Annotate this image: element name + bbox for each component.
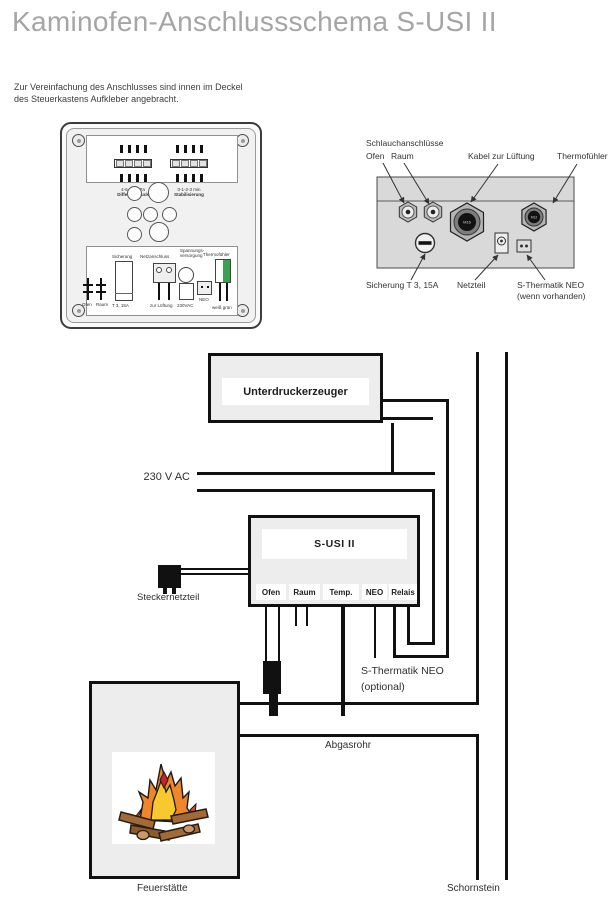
panel-schlauchanschluesse-label: Schlauchanschlüsse [366, 138, 444, 148]
schornstein-wall-left-upper [476, 352, 479, 705]
sticker-neo-label: NEO [199, 297, 209, 302]
wire-mains-top [197, 472, 435, 475]
hose-connector-raum-icon [424, 202, 441, 222]
panel-netzteil-label: Netzteil [457, 280, 485, 290]
intro-text: Zur Vereinfachung des Anschlusses sind i… [14, 82, 256, 105]
wire-raum-hose [295, 607, 297, 626]
schornstein-wall-left-lower [476, 734, 479, 880]
abgasrohr-wall-top [240, 702, 478, 705]
campfire-image [112, 752, 215, 844]
hose-port-hole [127, 227, 142, 242]
hose-symbol [100, 278, 102, 300]
unterdruckerzeuger-label: Unterdruckerzeuger [222, 378, 369, 405]
dip-pins-top [163, 140, 215, 158]
wire-unterdruck-stub [383, 417, 433, 420]
hose-symbol [96, 291, 106, 293]
thermo-terminal-green [223, 260, 230, 282]
sticker-netzanschluss-label: Netzanschluss [140, 254, 169, 259]
neo-optional-label-1: S-Thermatik NEO [361, 665, 444, 677]
panel-sicherung-label: Sicherung T 3, 15A [366, 280, 438, 290]
neo-block-dot [201, 286, 203, 288]
fuse-cylinder-cap [115, 293, 133, 294]
panel-neo-label-2: (wenn vorhanden) [517, 291, 586, 301]
terminal-wire [158, 283, 160, 300]
wire-mains-down [432, 489, 435, 645]
terminal-screw [156, 267, 162, 273]
sticker-sicherung-label: Sicherung [112, 254, 132, 259]
abgasrohr-label: Abgasrohr [325, 740, 371, 751]
neo-block-symbol [197, 281, 212, 295]
dip-switch-group-right: 0-1-2-3 min Stabilisierung [163, 140, 215, 197]
thermo-wire [226, 283, 228, 301]
dip-pins-top [107, 140, 159, 158]
power-plug [158, 565, 181, 588]
panel-kabel-label: Kabel zur Lüftung [468, 151, 535, 161]
terminal-wire [168, 283, 170, 300]
plug-cable [180, 573, 248, 575]
hose-symbol [96, 284, 106, 286]
power-plug-symbol [178, 267, 194, 283]
hose-port-hole [127, 207, 142, 222]
dip-switch-body [114, 159, 152, 168]
wire-raum-hose [306, 607, 308, 626]
power-body-symbol [179, 283, 194, 300]
cable-gland-hole [148, 182, 169, 203]
neo-block-dot [207, 286, 209, 288]
ofen-hose-probe [269, 694, 278, 716]
sticker-volt-label: 230VAC [177, 303, 193, 308]
port-temp: Temp. [323, 584, 359, 600]
neo-connector-icon [517, 240, 531, 252]
wire-neo [374, 607, 376, 658]
sticker-thermo-label: Thermofühler [203, 252, 230, 257]
wire-unterdruck-to-mains [391, 423, 394, 475]
fuse-holder-icon [416, 234, 435, 253]
sticker-wire-colors: weiß grün [212, 305, 232, 310]
wire-relais-outer-h [393, 655, 449, 658]
schornstein-label: Schornstein [447, 883, 500, 894]
port-ofen: Ofen [256, 584, 286, 600]
sticker-ofen-label: Ofen [82, 302, 92, 307]
gland-size-label: M16 [463, 220, 472, 225]
plug-cable [180, 568, 248, 570]
fuse-cylinder-symbol [115, 261, 133, 301]
wire-relais-inner-v [407, 607, 410, 645]
wire-unterdruck-down [446, 399, 449, 658]
dip-pins-bottom [163, 169, 215, 187]
panel-thermofuehler-label: Thermofühler [557, 151, 608, 161]
schornstein-wall-right [505, 352, 508, 880]
dip-name-label: Stabilisierung [163, 192, 215, 197]
ofen-hose-connector [263, 661, 281, 694]
sticker-raum-label: Raum [96, 302, 108, 307]
feuerstaette-label: Feuerstätte [137, 883, 188, 894]
sticker-lueftung-label: zur Lüftung [150, 303, 173, 308]
wire-ofen-hose [278, 607, 280, 662]
hose-port-hole [143, 207, 158, 222]
wire-unterdruck-out [383, 399, 448, 402]
wire-relais-outer-v [393, 607, 396, 658]
wire-relais-inner-h [408, 642, 435, 645]
sticker-fuse-value: T 3, 15A [112, 303, 129, 308]
susi-label: S-USI II [262, 529, 407, 559]
page-title: Kaminofen-Anschlussschema S-USI II [12, 6, 497, 38]
neo-optional-label-2: (optional) [361, 681, 405, 693]
hose-symbol [83, 291, 93, 293]
terminal-screw [166, 267, 172, 273]
screw-icon [72, 134, 85, 147]
port-relais: Relais [389, 584, 417, 600]
hose-symbol [83, 284, 93, 286]
terminal-block-symbol [153, 263, 176, 283]
panel-ofen-label: Ofen [366, 151, 384, 161]
hose-symbol [87, 278, 89, 300]
sticker-spannung-label2: versorgung [180, 253, 203, 258]
log-end [137, 831, 149, 840]
cable-gland-hole [149, 222, 169, 242]
power-jack-icon [495, 233, 508, 253]
steckernetzteil-label: Steckernetzteil [137, 592, 199, 603]
port-neo: NEO [362, 584, 387, 600]
dip-switch-body [170, 159, 208, 168]
port-raum: Raum [289, 584, 320, 600]
hose-port-hole [127, 186, 142, 201]
panel-neo-label-1: S-Thermatik NEO [517, 280, 584, 290]
abgasrohr-wall-bottom [240, 734, 478, 737]
panel-raum-label: Raum [391, 151, 414, 161]
gland-size-label: M12 [531, 216, 538, 220]
voltage-label: 230 V AC [128, 471, 190, 483]
hose-port-hole [162, 207, 177, 222]
fire-image-patch [112, 752, 215, 844]
wire-ofen-hose [265, 607, 267, 662]
wire-mains-bottom [197, 489, 435, 492]
thermo-wire [219, 283, 221, 301]
wire-temp-sensor [341, 607, 345, 716]
hose-connector-ofen-icon [399, 202, 416, 222]
manual-page: Kaminofen-Anschlussschema S-USI II Zur V… [0, 0, 616, 902]
log-end [184, 825, 195, 833]
